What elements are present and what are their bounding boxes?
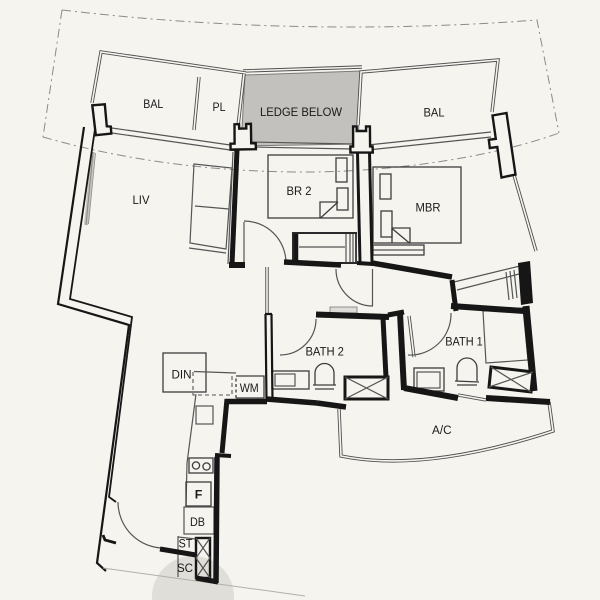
- svg-text:A/C: A/C: [432, 423, 452, 437]
- svg-text:SC: SC: [177, 561, 193, 575]
- svg-text:LIV: LIV: [133, 193, 151, 207]
- svg-text:BAL: BAL: [424, 106, 445, 120]
- svg-text:DB: DB: [190, 515, 205, 529]
- svg-text:F: F: [195, 488, 203, 502]
- svg-text:PL: PL: [213, 100, 226, 114]
- svg-text:BATH 1: BATH 1: [445, 334, 483, 348]
- svg-text:BR 2: BR 2: [287, 184, 312, 198]
- svg-text:LEDGE BELOW: LEDGE BELOW: [260, 105, 342, 119]
- svg-text:BAL: BAL: [143, 97, 163, 111]
- svg-text:ST: ST: [179, 537, 193, 551]
- svg-text:WM: WM: [240, 381, 259, 395]
- svg-text:MBR: MBR: [416, 201, 441, 215]
- svg-text:DIN: DIN: [172, 368, 192, 382]
- svg-text:BATH 2: BATH 2: [305, 345, 344, 359]
